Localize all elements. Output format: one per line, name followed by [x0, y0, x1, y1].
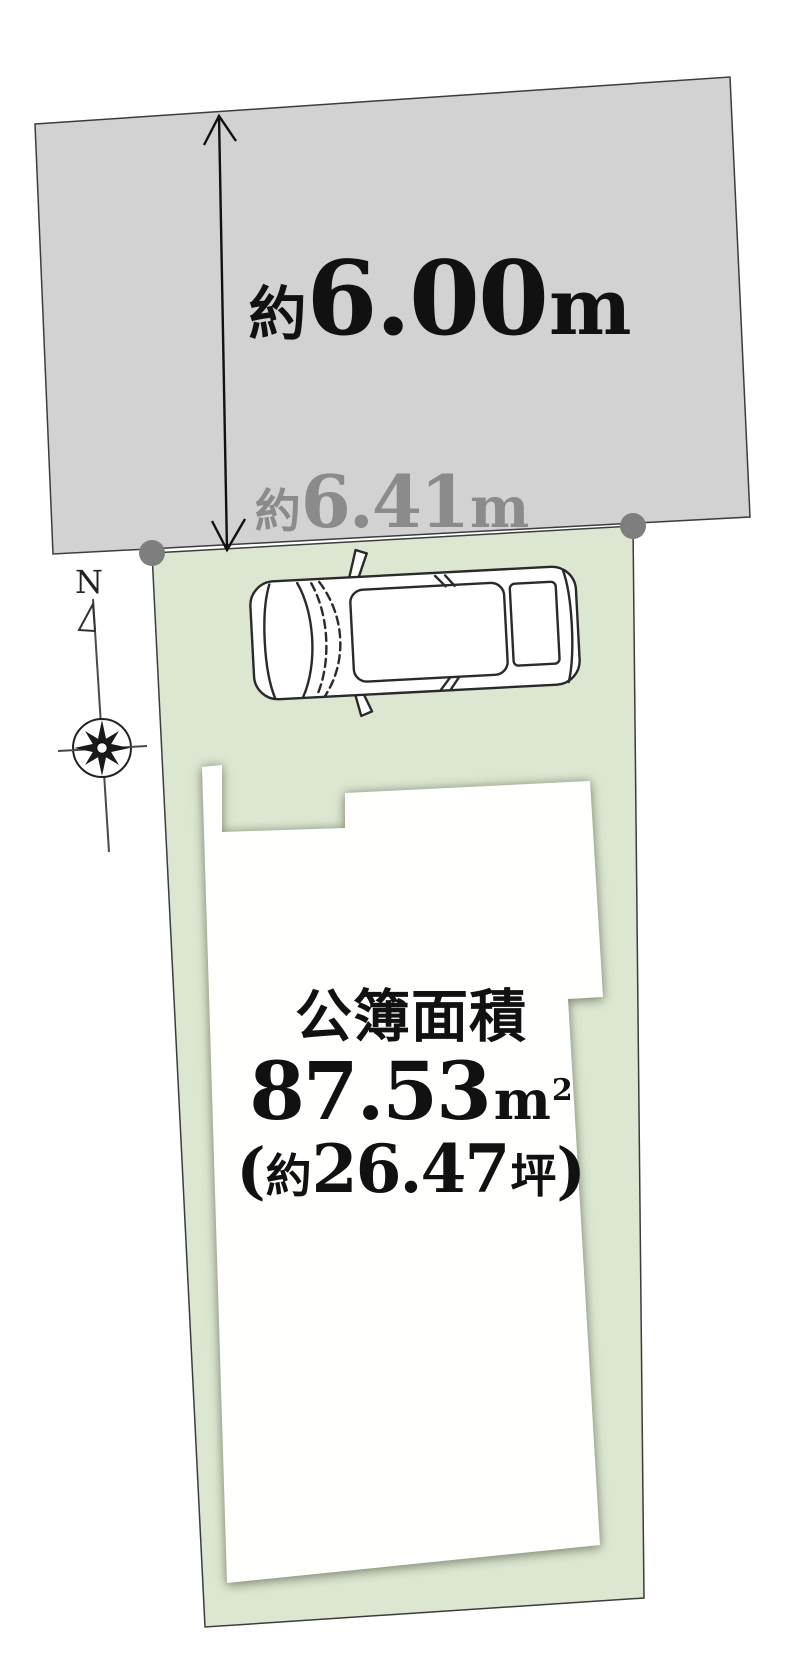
approx-prefix: 約	[266, 1153, 312, 1199]
frontage-value: 6.41	[301, 466, 468, 538]
boundary-marker-left	[139, 540, 165, 566]
road-depth-value: 6.00	[307, 248, 547, 350]
frontage-unit: m	[470, 480, 529, 536]
north-label: N	[75, 566, 103, 598]
area-title: 公簿面積	[295, 988, 527, 1045]
area-value: 87.53	[249, 1051, 490, 1131]
compass-rose-icon	[58, 599, 147, 852]
approx-prefix: 約	[255, 488, 301, 534]
area-unit: m	[494, 1073, 551, 1127]
tsubo-value: 26.47	[312, 1136, 509, 1202]
approx-prefix: 約	[249, 285, 307, 343]
road-depth-unit: m	[549, 269, 632, 347]
car-rear-window	[510, 582, 560, 666]
car-roof	[350, 582, 509, 682]
area-unit-exponent: 2	[552, 1076, 573, 1106]
north-arrow-icon	[79, 604, 95, 631]
frontage-dimension: 約6.41m	[255, 466, 530, 538]
tsubo-line: (約26.47坪)	[236, 1136, 585, 1202]
area-value-line: 87.53m2	[249, 1051, 573, 1131]
road-depth-dimension: 約6.00m	[249, 248, 632, 350]
boundary-marker-right	[620, 513, 646, 539]
plot-diagram: 約6.00m 約6.41m 公簿面積 87.53m2 (約26.47坪) N	[0, 0, 786, 1664]
tsubo-unit: 坪	[510, 1153, 556, 1199]
